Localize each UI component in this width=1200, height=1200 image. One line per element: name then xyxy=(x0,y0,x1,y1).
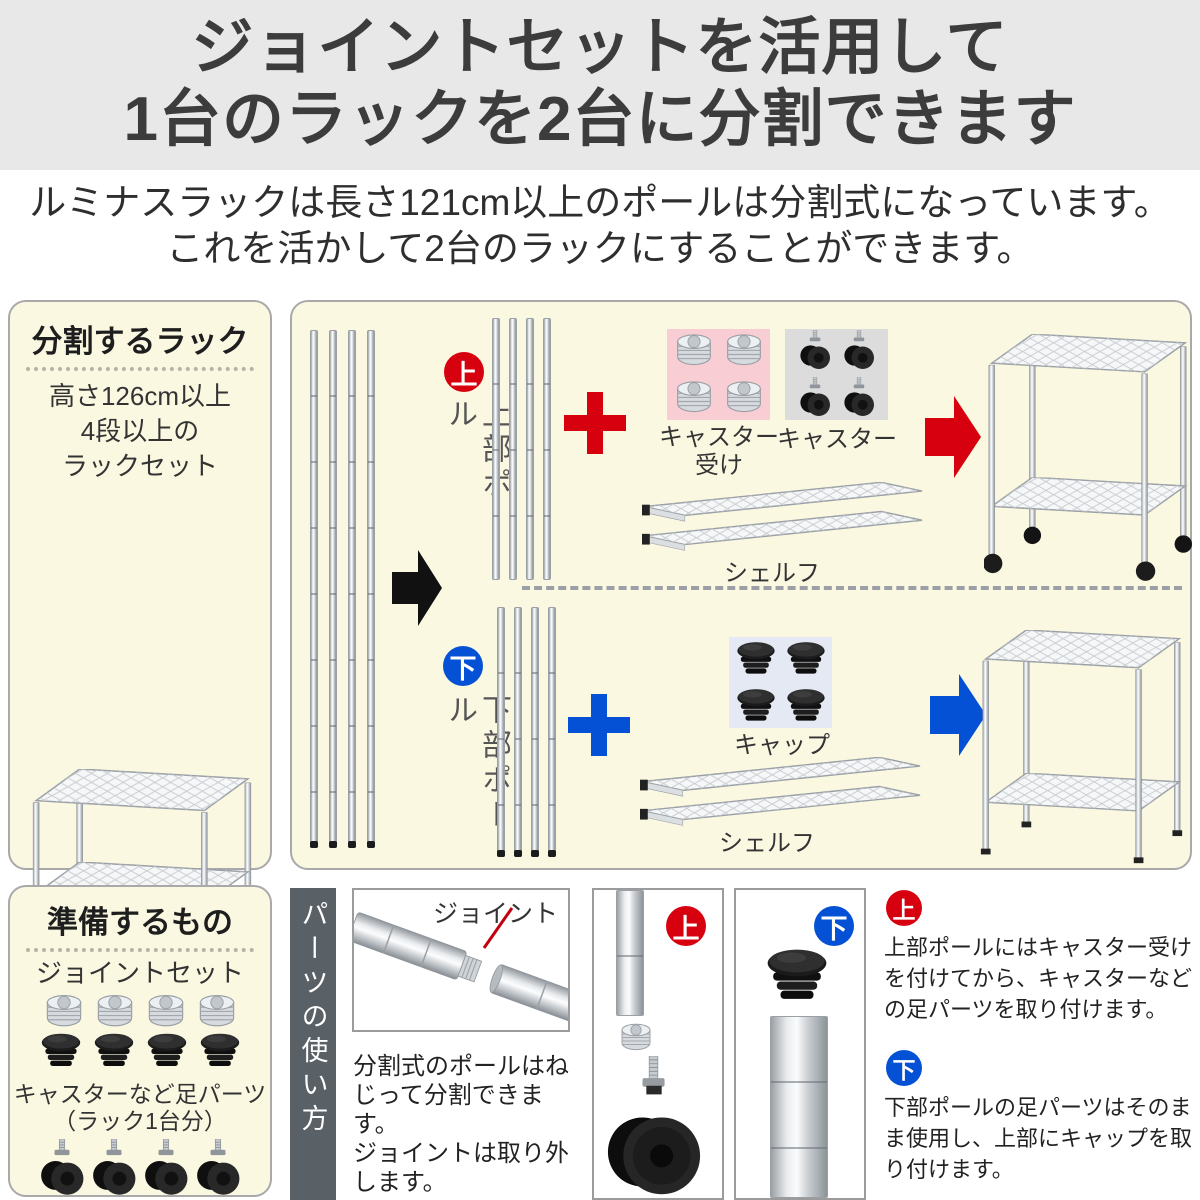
cap-row xyxy=(10,1033,270,1069)
caster-row xyxy=(10,1139,270,1199)
upper-step-line1: 上部ポールにはキャスター受け xyxy=(884,932,1196,963)
lower-step-badge: 下 xyxy=(886,1050,922,1086)
joint-icon xyxy=(144,993,188,1031)
lower-badge: 下 xyxy=(443,646,483,686)
cap-label: キャップ xyxy=(722,732,842,760)
intro-line1: ルミナスラックは長さ121cm以上のポールは分割式になっています。 xyxy=(0,180,1200,226)
dotted-divider xyxy=(26,948,255,952)
upper-pole-closeup-image xyxy=(616,890,644,1016)
cap-icon xyxy=(92,1033,136,1069)
cap-box xyxy=(729,637,832,728)
joint-receiver-icon xyxy=(723,379,765,417)
upper-pole-image xyxy=(526,318,534,580)
caster-closeup-image xyxy=(606,1056,702,1200)
two-tier-rack-image xyxy=(978,628,1186,870)
caster-box xyxy=(785,329,888,420)
joint-usage-line2: じって分割できます。 xyxy=(353,1081,585,1139)
upper-badge: 上 xyxy=(666,906,706,946)
two-tier-caster-rack-image xyxy=(984,332,1192,582)
lower-pole-image xyxy=(548,607,556,857)
cap-closeup-icon xyxy=(764,948,830,1004)
joint-usage-text: 分割式のポールはね じって分割できます。 ジョイントは取り外 します。 xyxy=(353,1052,585,1197)
page-title-line1: ジョイントセットを活用して xyxy=(0,12,1200,84)
joint-icon xyxy=(42,993,86,1031)
joint-figure-box: ジョイント xyxy=(352,888,570,1032)
lower-pole-image xyxy=(497,607,505,857)
cap-icon xyxy=(785,688,827,724)
lower-pole-image xyxy=(531,607,539,857)
lower-pole-closeup-image xyxy=(770,1016,828,1198)
upper-shelf-label: シェルフ xyxy=(692,560,852,588)
upper-badge: 上 xyxy=(444,352,484,392)
upper-pole-image xyxy=(492,318,500,580)
joint-icon xyxy=(93,993,137,1031)
caster-icon xyxy=(841,377,877,419)
lower-badge: 下 xyxy=(814,906,854,946)
plus-red-icon xyxy=(564,392,626,454)
joint-callout-label: ジョイント xyxy=(433,894,558,930)
lower-pole-box: 下 xyxy=(734,888,866,1200)
prepare-panel: 準備するもの ジョイントセット キャスターなど足パーツ （ラック1台分） xyxy=(8,885,272,1197)
upper-step-line2: を付けてから、キャスターなど xyxy=(884,963,1196,994)
caster-icon xyxy=(195,1139,241,1199)
caster-label: キャスター xyxy=(777,426,897,454)
caster-icon xyxy=(797,377,833,419)
split-rack-desc-line1: 高さ126cm以上 xyxy=(10,379,270,414)
joint-receiver-icon xyxy=(723,332,765,370)
upper-pole-image xyxy=(509,318,517,580)
upper-step-text: 上部ポールにはキャスター受け を付けてから、キャスターなど の足パーツを取り付け… xyxy=(884,932,1196,1025)
lower-step-line3: り付けます。 xyxy=(884,1154,1196,1185)
joint-usage-line4: します。 xyxy=(353,1168,585,1197)
dashed-divider xyxy=(522,586,1182,590)
dotted-divider xyxy=(26,367,255,371)
joint-usage-line3: ジョイントは取り外 xyxy=(353,1139,585,1168)
split-rack-desc-line3: ラックセット xyxy=(10,449,270,484)
caster-icon xyxy=(143,1139,189,1199)
upper-step-badge: 上 xyxy=(886,890,922,926)
caster-icon xyxy=(841,330,877,372)
split-process-panel: 上 上部ポール キャスター受け キャスター シェルフ xyxy=(290,300,1192,870)
caster-receiver-label: キャスター受け xyxy=(652,424,786,480)
intro-text: ルミナスラックは長さ121cm以上のポールは分割式になっています。 これを活かし… xyxy=(0,180,1200,272)
foot-parts-label-line1: キャスターなど足パーツ xyxy=(10,1081,270,1108)
prepare-title: 準備するもの xyxy=(10,897,270,942)
joint-receiver-icon xyxy=(673,332,715,370)
joint-receiver-icon xyxy=(618,1022,654,1054)
page: ジョイントセットを活用して 1台のラックを2台に分割できます ルミナスラックは長… xyxy=(0,0,1200,1200)
long-pole-image xyxy=(348,330,356,848)
caster-icon xyxy=(797,330,833,372)
foot-parts-label: キャスターなど足パーツ （ラック1台分） xyxy=(10,1081,270,1135)
long-pole-image xyxy=(329,330,337,848)
page-title-line2: 1台のラックを2台に分割できます xyxy=(0,84,1200,156)
arrow-right-black-icon xyxy=(392,550,442,626)
upper-pole-image xyxy=(543,318,551,580)
caster-icon xyxy=(91,1139,137,1199)
cap-icon xyxy=(735,641,777,677)
joint-usage-line1: 分割式のポールはね xyxy=(353,1052,585,1081)
arrow-right-red-icon xyxy=(925,396,981,478)
caster-icon xyxy=(39,1139,85,1199)
usage-banner-label: パーツの使い方 xyxy=(294,900,333,1200)
joint-receiver-icon xyxy=(673,379,715,417)
split-rack-desc-line2: 4段以上の xyxy=(10,414,270,449)
long-pole-image xyxy=(310,330,318,848)
lower-pole-image xyxy=(514,607,522,857)
lower-shelf-label: シェルフ xyxy=(687,830,847,858)
plus-blue-icon xyxy=(568,694,630,756)
foot-parts-label-line2: （ラック1台分） xyxy=(10,1108,270,1135)
cap-icon xyxy=(198,1033,242,1069)
cap-icon xyxy=(785,641,827,677)
header-band: ジョイントセットを活用して 1台のラックを2台に分割できます xyxy=(0,0,1200,170)
split-rack-desc: 高さ126cm以上 4段以上の ラックセット xyxy=(10,379,270,484)
lower-step-line2: ま使用し、上部にキャップを取 xyxy=(884,1123,1196,1154)
joint-set-label: ジョイントセット xyxy=(10,956,270,991)
caster-receiver-box xyxy=(667,329,770,420)
intro-line2: これを活かして2台のラックにすることができます。 xyxy=(0,226,1200,272)
long-pole-image xyxy=(367,330,375,848)
cap-icon xyxy=(735,688,777,724)
lower-step-line1: 下部ポールの足パーツはそのま xyxy=(884,1092,1196,1123)
usage-banner: パーツの使い方 xyxy=(290,888,336,1200)
split-rack-title: 分割するラック xyxy=(10,316,270,361)
cap-icon xyxy=(145,1033,189,1069)
upper-step-line3: の足パーツを取り付けます。 xyxy=(884,994,1196,1025)
cap-icon xyxy=(39,1033,83,1069)
joint-icon xyxy=(195,993,239,1031)
split-rack-panel: 分割するラック 高さ126cm以上 4段以上の ラックセット xyxy=(8,300,272,870)
lower-step-text: 下部ポールの足パーツはそのま ま使用し、上部にキャップを取 り付けます。 xyxy=(884,1092,1196,1185)
joint-set-row xyxy=(10,993,270,1031)
upper-pole-box: 上 xyxy=(592,888,724,1200)
